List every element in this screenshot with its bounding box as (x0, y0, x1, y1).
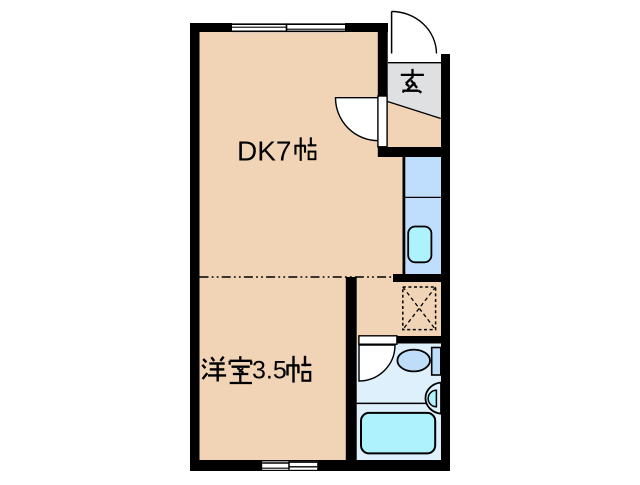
svg-text:3.5: 3.5 (252, 356, 287, 384)
svg-text:DK7: DK7 (237, 135, 291, 166)
